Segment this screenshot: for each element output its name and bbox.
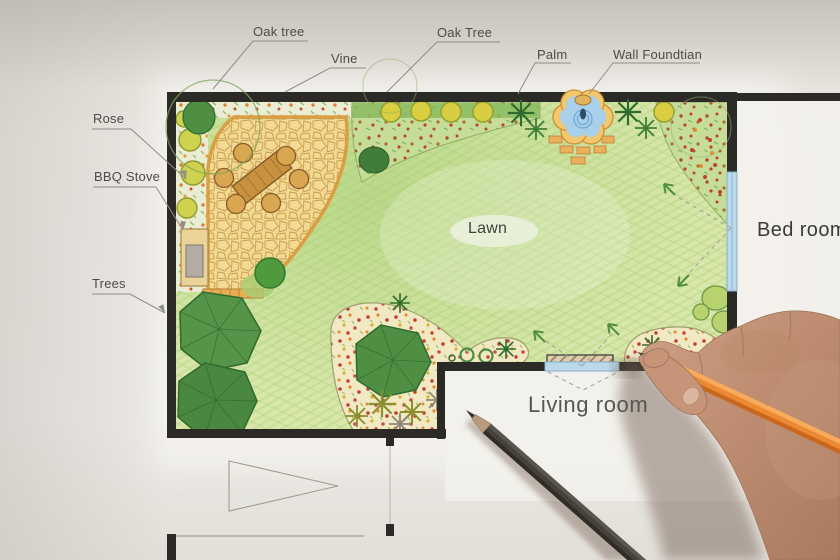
label-oak-tree-left: Oak tree bbox=[253, 25, 304, 40]
label-bedroom: Bed room bbox=[757, 219, 840, 242]
garden-plan-photo: Oak tree Vine Oak Tree Palm Wall Foundti… bbox=[0, 0, 840, 560]
label-vine: Vine bbox=[331, 52, 358, 67]
snowflake-plant-symbol bbox=[390, 293, 410, 313]
bbq-stove-symbol bbox=[181, 229, 208, 286]
fern-symbol bbox=[369, 391, 395, 417]
label-trees: Trees bbox=[92, 277, 126, 292]
label-lawn: Lawn bbox=[468, 220, 507, 238]
label-living-room: Living room bbox=[528, 392, 648, 417]
plan-drawing bbox=[0, 0, 840, 560]
living-room-window bbox=[545, 362, 619, 371]
bush-symbol bbox=[359, 147, 389, 173]
label-oak-tree-top: Oak Tree bbox=[437, 26, 492, 41]
label-rose: Rose bbox=[93, 112, 124, 127]
label-bbq-stove: BBQ Stove bbox=[94, 170, 160, 185]
label-wall-fountain: Wall Foundtian bbox=[613, 48, 702, 63]
label-palm: Palm bbox=[537, 48, 567, 63]
